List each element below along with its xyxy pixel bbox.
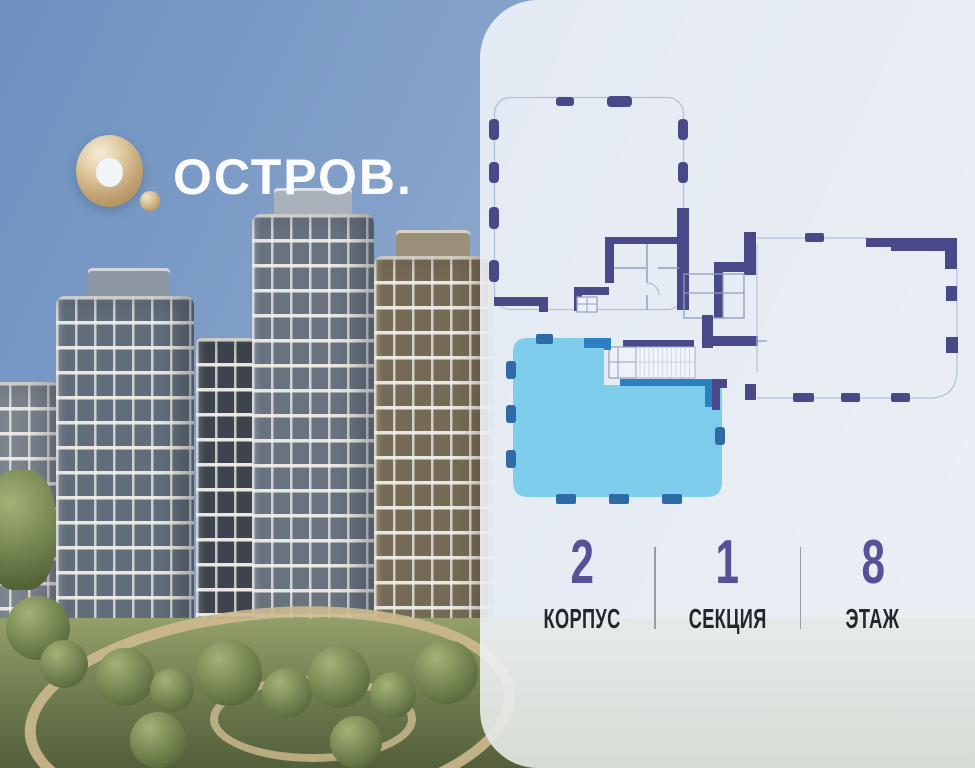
unit-top-left[interactable] — [489, 96, 688, 310]
tree — [370, 672, 416, 718]
page: ОСТРОВ. — [0, 0, 975, 768]
tree — [150, 668, 194, 712]
caption-building: 2 КОРПУС — [510, 538, 654, 634]
tree — [130, 712, 186, 768]
unit-caption: 2 КОРПУС 1 СЕКЦИЯ 8 ЭТАЖ — [480, 538, 975, 634]
tower-left-penthouse — [88, 268, 170, 298]
tree — [308, 646, 370, 708]
floor-number: 8 — [861, 538, 884, 589]
tree — [40, 640, 88, 688]
tower-right-penthouse — [396, 230, 470, 258]
caption-floor: 8 ЭТАЖ — [801, 538, 945, 634]
logo-o-hole — [96, 158, 123, 187]
tree — [196, 640, 262, 706]
caption-section: 1 СЕКЦИЯ — [656, 538, 800, 634]
tree — [0, 470, 56, 590]
section-number: 1 — [716, 538, 739, 589]
logo-dot-icon — [140, 191, 160, 211]
floor-label: ЭТАЖ — [846, 603, 900, 636]
floor-plan — [480, 0, 975, 768]
tree — [262, 668, 312, 718]
tree — [414, 640, 478, 704]
section-label: СЕКЦИЯ — [689, 603, 767, 636]
tree — [330, 716, 382, 768]
unit-right[interactable] — [757, 233, 958, 402]
logo-title: ОСТРОВ. — [173, 148, 413, 206]
tree — [96, 648, 154, 706]
building-label: КОРПУС — [543, 603, 620, 636]
building-number: 2 — [570, 538, 593, 589]
